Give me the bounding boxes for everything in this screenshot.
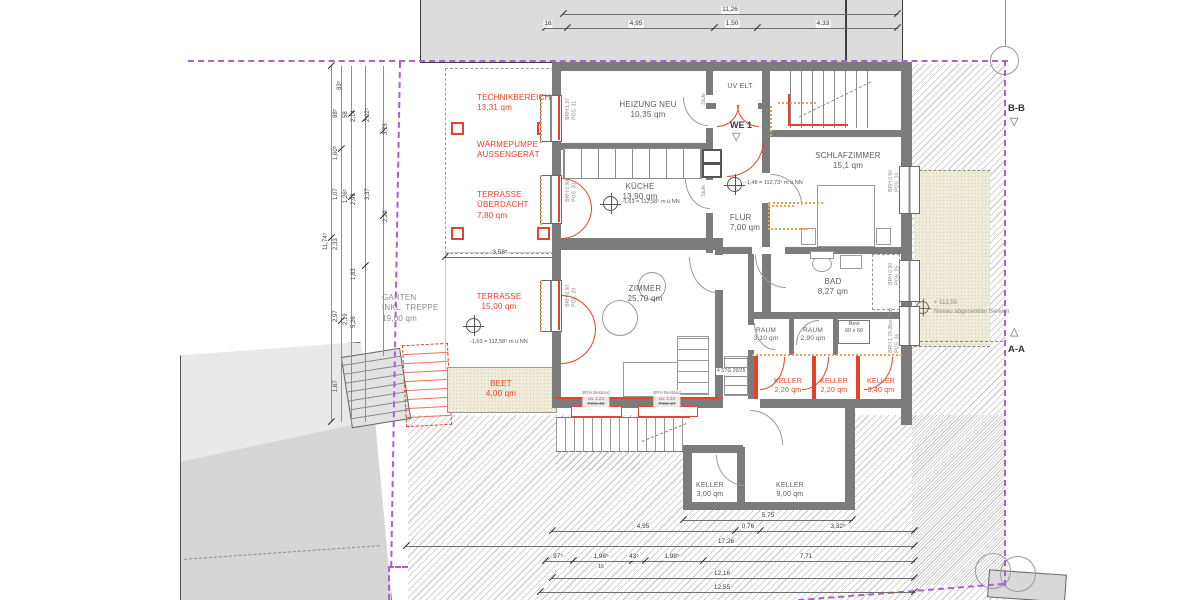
window-label-pos25: BRH 0,90 POS. 25	[888, 263, 901, 285]
label-waermepumpe: WÄRMEPUMPE AUSSENGERÄT	[477, 140, 540, 161]
red-label-line: 3,40 qm	[867, 386, 895, 395]
dim-overhang: 3,58⁵	[491, 249, 508, 257]
dim-left: 2,02⁵	[365, 108, 371, 122]
red-label-line: AUSSENGERÄT	[477, 150, 540, 160]
dim-bottom: 1,98⁵	[592, 553, 609, 561]
wall-zimmer-right-2	[715, 290, 723, 408]
toilet-tank	[810, 251, 834, 259]
neighbor-wall-line	[845, 0, 847, 62]
dim-left: 1,67	[333, 380, 339, 392]
dim-top-433: 4,33	[816, 20, 831, 28]
room-label-heizung: HEIZUNG NEU 10,35 qm	[619, 100, 676, 121]
window-label-text: BRH Bestand	[582, 390, 609, 396]
revi-label-1: Revi	[839, 321, 869, 328]
wall-zimmer-top	[561, 238, 723, 250]
door-arc-schlafzimmer	[771, 174, 802, 205]
dim-left: 83⁵	[337, 81, 343, 90]
dim-bottom: 17,26	[717, 538, 735, 546]
room-area: 25,70 qm	[628, 294, 663, 304]
dim-vline	[331, 66, 332, 422]
window-label-text: BRH 1,78 (Bestand)	[888, 308, 894, 353]
column-post	[537, 227, 550, 240]
wall-flur-bottom-2	[785, 247, 912, 254]
conduit-keller-row	[752, 354, 902, 356]
red-label-line: 2,20 qm	[820, 386, 848, 395]
room-area: 8,27 qm	[818, 287, 848, 297]
stufe-label-2: Stufe	[701, 185, 707, 197]
room-area: 9,00 qm	[776, 490, 804, 499]
dim-bottom: 1,98⁵	[663, 553, 680, 561]
label-technikbereich: TECHNIKBEREICH 13,31 qm	[477, 93, 550, 114]
dim-left: 1,83	[351, 268, 357, 280]
boundary-right	[1004, 60, 1006, 586]
dim-left: 1,60⁵	[333, 146, 339, 160]
section-line-aa	[915, 341, 1003, 342]
window-label-text: POS. 28	[582, 401, 609, 407]
red-label-line: TECHNIKBEREICH	[477, 93, 550, 103]
window-label-text: BRH 0,90	[565, 180, 571, 202]
red-label-line: 13,31 qm	[477, 103, 550, 113]
section-marker-bb: B-B	[1008, 103, 1025, 115]
label-beet: BEET 4,00 qm	[486, 379, 516, 400]
window-label-pos24: BRH 0,90 POS. 24	[888, 170, 901, 192]
conduit-flur-v	[770, 106, 772, 136]
dim-left: 1,07	[333, 188, 339, 200]
room-area: 10,35 qm	[619, 110, 676, 120]
room-label-schlafzimmer: SCHLAFZIMMER 15,1 qm	[815, 151, 881, 172]
stufe-text: Stufe	[701, 185, 707, 197]
dim-top-150: 1,50	[725, 20, 740, 28]
room-label-raum2: RAUM 2,90 qm	[801, 327, 826, 344]
wall-flur-bottom-1	[723, 247, 752, 254]
window-label-text: BRH 0,90	[565, 285, 571, 307]
dim-line-b2	[406, 546, 915, 547]
window-label-text: POS. 29	[571, 285, 577, 307]
wall-exterior-top	[552, 62, 912, 71]
annex-wall-topleft	[683, 445, 743, 453]
nightstand-right	[876, 228, 891, 245]
window-pos27	[638, 406, 698, 417]
annex-wall-bottom	[683, 502, 855, 510]
door-arc-terrace-zimmer-2	[561, 329, 596, 364]
window-label-text: BRH 0,90	[888, 170, 894, 192]
window-label-pos30: BRH 0,90 POS. 30	[565, 180, 578, 202]
wall-uv-closet-2	[758, 103, 769, 109]
room-area: 3,10 qm	[754, 335, 779, 343]
annex-wall-right	[845, 408, 855, 510]
dim-bottom: 3,32⁵	[829, 523, 846, 531]
room-label-keller-b: KELLER 9,00 qm	[776, 481, 804, 499]
room-name: KELLER	[776, 481, 804, 490]
level-niveau-note: Niveau abgesenkter Bereich	[934, 309, 1009, 317]
dim-left: 2,19	[343, 313, 349, 325]
stair-red-line-h	[788, 124, 848, 126]
window-label-text: POS. 27	[653, 401, 680, 407]
sink	[840, 255, 862, 269]
dim-annex: 5,75	[761, 512, 776, 520]
dim-bottom: 7,71	[799, 553, 814, 561]
window-label-text: POS. 30	[571, 180, 577, 202]
dim-bottom: 4,95	[636, 523, 651, 531]
boundary-jog-v	[388, 566, 390, 600]
room-label-flur: FLUR 7,00 qm	[730, 213, 760, 234]
window-pos28	[571, 406, 622, 417]
window-label-text: BRH 0,90	[888, 263, 894, 285]
dim-top-495: 4,95	[629, 20, 644, 28]
dim-left: 11,74⁵	[323, 233, 329, 250]
door-arc-bad	[755, 255, 786, 288]
window-label-pos27: BRH Bestand ca. 1,23 POS. 27	[653, 390, 680, 407]
dim-left: 3,37	[365, 188, 371, 200]
dim-bottom-sub: 16	[597, 564, 605, 571]
window-label-pos26: BRH 1,78 (Bestand) POS. 26	[888, 308, 901, 353]
red-label-line: 7,80 qm	[477, 211, 529, 221]
dim-line-b4	[552, 578, 915, 579]
level-text-kueche: -1,63 = 112,58⁵ m ü NN	[622, 199, 680, 206]
wall-exterior-right	[901, 62, 912, 425]
dim-bottom: 97⁵	[552, 553, 564, 561]
red-label-line: 15,00 qm	[477, 302, 522, 312]
room-name: SCHLAFZIMMER	[815, 151, 881, 161]
red-label-line: TERRASSE	[477, 292, 522, 302]
exterior-stair-south	[556, 417, 690, 452]
window-label-pos31: BRH 1,37 POS. 31	[565, 98, 578, 120]
red-label-line: TERRASSE	[477, 190, 529, 200]
stufe-text: Stufe	[701, 93, 707, 105]
dim-bottom: 43⁵	[628, 553, 640, 561]
label-terrasse-ueberdacht: TERRASSE ÜBERDACHT 7,80 qm	[477, 190, 529, 221]
window-pos24	[899, 166, 920, 214]
section-marker-aa-triangle: △	[1010, 325, 1018, 339]
label-keller1: KELLER 2,20 qm	[774, 377, 802, 395]
window-red-line-30	[558, 175, 560, 222]
room-area: 3,00 qm	[696, 490, 724, 499]
annex-wall-left	[683, 445, 692, 510]
garten-line: 19,00 qm	[382, 314, 439, 324]
wall-corridor-left-1	[706, 71, 713, 95]
room-name: ZIMMER	[628, 284, 663, 294]
dim-bottom: 0,76	[741, 523, 756, 531]
dim-left: 2,97	[333, 310, 339, 322]
conduit-stair	[778, 102, 816, 104]
room-label-bad: BAD 8,27 qm	[818, 277, 848, 298]
window-pos25	[899, 260, 920, 302]
boundary-jog-h	[388, 566, 408, 568]
wall-raum-partition-1	[789, 319, 794, 355]
dim-bottom: 12,16	[713, 570, 731, 578]
dim-left: 5,26	[351, 316, 357, 328]
bed	[817, 185, 875, 247]
room-name: UV ELT	[727, 82, 752, 91]
window-label-pos29: BRH 0,90 POS. 29	[565, 285, 578, 307]
dim-left: 2,14	[351, 110, 357, 122]
dim-left: 2,98	[351, 193, 357, 205]
red-label-line: WÄRMEPUMPE	[477, 140, 540, 150]
kitchen-counter	[563, 148, 702, 179]
level-marker-kueche	[603, 196, 618, 211]
dim-bottom: 12,55	[713, 584, 731, 592]
room-name: KÜCHE	[623, 182, 658, 192]
red-label-line: ÜBERDACHT	[477, 200, 529, 210]
column-post	[451, 122, 464, 135]
red-label-line: BEET	[486, 379, 516, 389]
survey-line-top	[1005, 0, 1006, 46]
room-area: 15,1 qm	[815, 161, 881, 171]
window-label-text: BRH Bestand	[653, 390, 680, 396]
stair-4stg	[724, 356, 748, 396]
level-niveau-value: + 113,55	[934, 300, 957, 308]
wall-keller-left	[754, 356, 758, 399]
garten-line: GARTEN	[382, 293, 439, 303]
nightstand-left	[801, 228, 816, 245]
kitchen-appliance-2	[702, 163, 722, 178]
dim-left: 1,26⁵	[343, 189, 349, 203]
room-name: RAUM	[801, 327, 826, 335]
window-red-line-29	[558, 280, 560, 330]
window-label-pos28: BRH Bestand ca. 1,23 POS. 28	[582, 390, 609, 407]
room-name: KELLER	[696, 481, 724, 490]
label-keller3: KELLER 3,40 qm	[867, 377, 895, 395]
hatch-stair-side	[556, 451, 640, 471]
window-label-text: BRH 1,37	[565, 98, 571, 120]
wall-hall-right-1	[748, 254, 754, 325]
garten-line: INKL. TREPPE	[382, 303, 439, 313]
red-label-line: KELLER	[867, 377, 895, 386]
conduit-schlaf-v	[768, 204, 770, 230]
wall-stair-bottom	[762, 130, 901, 137]
conduit-left-2	[540, 175, 542, 225]
neighbor-building-top	[420, 0, 903, 63]
wall-zimmer-right-1	[715, 250, 723, 255]
door-arc-terrace-kueche-2	[561, 208, 592, 239]
conduit-schlaf-h2	[768, 228, 808, 230]
dim-line-top-2	[545, 28, 898, 29]
dim-left: 3,75	[383, 123, 389, 135]
dim-vline	[341, 66, 342, 422]
dim-left: 58	[343, 111, 349, 118]
room-label-keller-a: KELLER 3,00 qm	[696, 481, 724, 499]
window-pos26	[899, 306, 920, 346]
room-area: 7,00 qm	[730, 223, 760, 233]
room-name: FLUR	[730, 213, 760, 223]
dim-left: 88⁵	[333, 109, 339, 118]
window-red-line-31	[558, 95, 560, 140]
red-label-line: 2,20 qm	[774, 386, 802, 395]
level-text-flur: -1,48 = 112,73⁵ m ü NN	[745, 180, 803, 187]
column-post	[451, 227, 464, 240]
level-text-terrasse: -1,63 = 112,58⁵ m ü NN	[470, 339, 528, 346]
label-keller2: KELLER 2,20 qm	[820, 377, 848, 395]
wall-exterior-bottom-east	[760, 399, 912, 408]
room-name: HEIZUNG NEU	[619, 100, 676, 110]
dim-top-1: 11,26	[721, 6, 739, 14]
zimmer-table-round-1	[602, 300, 638, 336]
red-label-line: KELLER	[820, 377, 848, 386]
dim-top-16: 16	[543, 20, 552, 28]
level-marker-terrasse	[466, 318, 481, 333]
wall-keller-partition-2	[856, 356, 860, 399]
renovation-line-bottom	[556, 397, 721, 399]
room-name: RAUM	[754, 327, 779, 335]
section-marker-bb-triangle: ▽	[1010, 115, 1018, 129]
red-label-line: KELLER	[774, 377, 802, 386]
section-marker-aa: A-A	[1008, 344, 1025, 356]
stair-red-line-v	[788, 94, 790, 126]
window-label-text: POS. 31	[571, 98, 577, 120]
door-arc-we1-entry	[727, 140, 764, 177]
room-label-raum1: RAUM 3,10 qm	[754, 327, 779, 344]
door-arc-zimmer	[689, 257, 717, 293]
room-area: 2,90 qm	[801, 335, 826, 343]
stair-4stg-label: 4 STG 20/25	[716, 368, 746, 375]
zimmer-shelf	[677, 336, 709, 395]
label-terrasse: TERRASSE 15,00 qm	[477, 292, 522, 313]
conduit-schlaf-h	[768, 202, 823, 204]
room-label-uv: UV ELT	[727, 82, 752, 91]
stufe-label-1: Stufe	[701, 93, 707, 105]
floor-plan-canvas: 11,26 16 4,95 1,50 4,33 + 113,55 Niveau …	[0, 0, 1200, 600]
dim-left: 2,29	[383, 210, 389, 222]
kitchen-appliance-1	[702, 149, 722, 164]
window-label-text: POS. 25	[894, 263, 900, 285]
room-label-zimmer: ZIMMER 25,70 qm	[628, 284, 663, 305]
level-marker-flur	[727, 177, 742, 192]
we1-triangle: ▽	[732, 130, 740, 144]
window-label-text: POS. 24	[894, 170, 900, 192]
revi-label-2: 60 x 60	[839, 328, 869, 335]
label-garten: GARTEN INKL. TREPPE 19,00 qm	[382, 293, 439, 324]
window-label-text: POS. 26	[894, 308, 900, 353]
sunken-area-right	[914, 170, 990, 347]
room-name: BAD	[818, 277, 848, 287]
dim-left: 2,33	[333, 238, 339, 250]
red-label-line: 4,00 qm	[486, 389, 516, 399]
conduit-flur-h	[768, 205, 794, 207]
revi-box: Revi 60 x 60	[838, 320, 870, 344]
conduit-left-3	[540, 280, 542, 332]
